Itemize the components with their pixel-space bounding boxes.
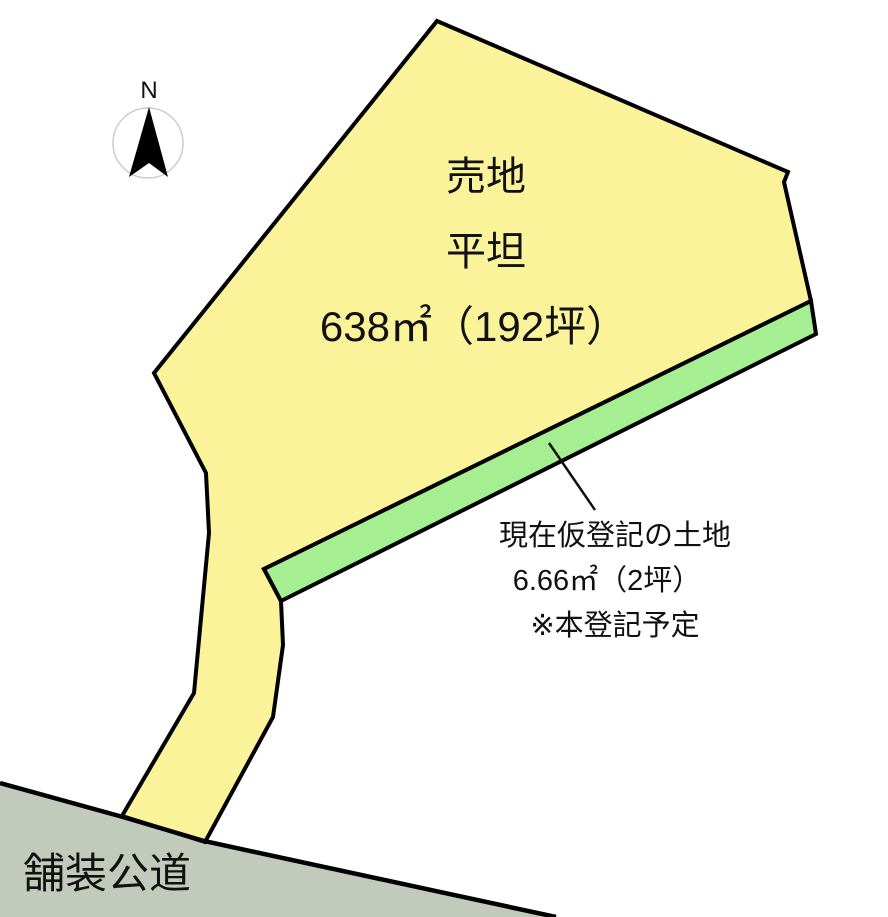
plot-polygon (122, 21, 811, 842)
land-plot-diagram: N 売地 平坦 638㎡（192坪） 現在仮登記の土地 6.66㎡（2坪） ※本… (0, 0, 888, 917)
strip-annotation-line2: 6.66㎡（2坪） (513, 564, 702, 597)
compass: N (113, 77, 183, 178)
strip-annotation-line1: 現在仮登記の土地 (499, 519, 731, 552)
plot-terrain-label: 平坦 (446, 230, 526, 274)
strip-annotation-line3: ※本登記予定 (530, 609, 699, 642)
road-label: 舗装公道 (23, 850, 191, 897)
plot-area-label: 638㎡（192坪） (320, 303, 628, 350)
compass-n-label: N (140, 77, 157, 104)
diagram-canvas: N 売地 平坦 638㎡（192坪） 現在仮登記の土地 6.66㎡（2坪） ※本… (0, 0, 888, 917)
strip-annotation: 現在仮登記の土地 6.66㎡（2坪） ※本登記予定 (499, 519, 731, 642)
plot-status-label: 売地 (446, 155, 526, 199)
